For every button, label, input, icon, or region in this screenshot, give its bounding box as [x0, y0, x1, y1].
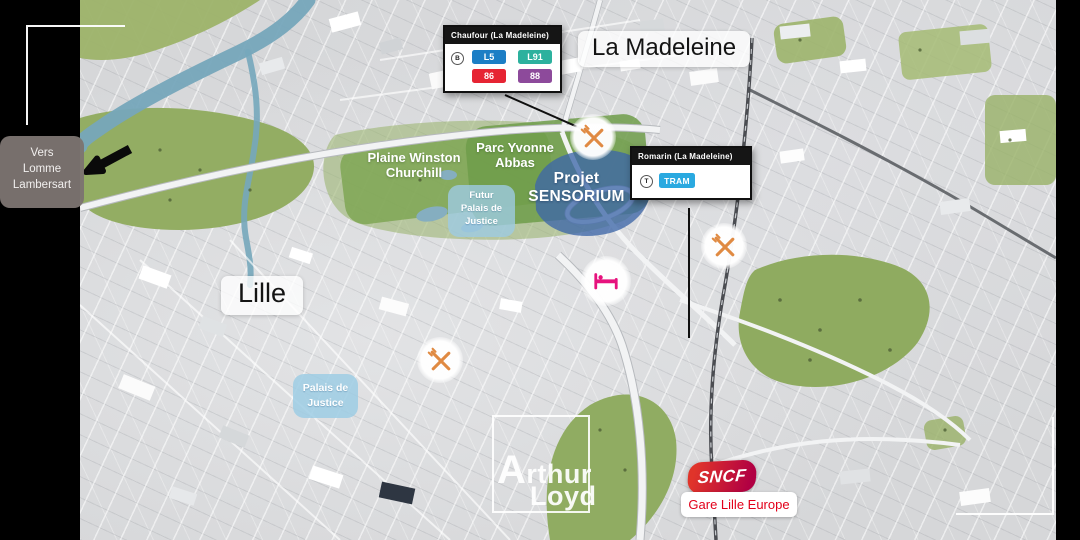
bus-line-badge: 86 — [472, 69, 506, 83]
label-palais-de-justice: Palais de Justice — [293, 374, 358, 418]
label-la-madeleine: La Madeleine — [578, 31, 750, 67]
label-projet-sensorium: Projet SENSORIUM — [513, 170, 640, 207]
direction-sign-lomme-lambersart: Vers Lomme Lambersart — [0, 136, 84, 208]
label-parc-yvonne-abbas: Parc Yvonne Abbas — [453, 140, 577, 171]
bus-circle-icon: B — [451, 52, 464, 65]
callout-chaufour-stop: Chaufour (La Madeleine) B L5 L91 86 88 — [443, 25, 562, 93]
restaurant-marker — [701, 223, 747, 269]
slide: Arthur Loyd La Madeleine Lille Plaine Wi… — [0, 0, 1080, 540]
watermark-line2: Loyd — [530, 486, 597, 508]
hotel-marker — [581, 256, 631, 306]
label-gare-lille-europe: Gare Lille Europe — [681, 492, 797, 517]
bus-line-badge: L91 — [518, 50, 552, 64]
callout-romarin-title: Romarin (La Madeleine) — [632, 148, 750, 165]
bus-line-badge: 88 — [518, 69, 552, 83]
callout-chaufour-title: Chaufour (La Madeleine) — [445, 27, 560, 44]
bus-line-badge: L5 — [472, 50, 506, 64]
restaurant-marker — [417, 337, 463, 383]
callout-romarin-stop: Romarin (La Madeleine) T TRAM — [630, 146, 752, 200]
label-futur-palais-de-justice: Futur Palais de Justice — [448, 185, 515, 237]
arthur-loyd-watermark: Arthur Loyd — [497, 456, 597, 507]
sncf-logo: SNCF — [686, 459, 757, 495]
hotel-bed-icon — [592, 267, 620, 295]
restaurant-marker — [570, 114, 616, 160]
crossed-fork-knife-icon — [711, 233, 738, 260]
watermark-initial: A — [497, 456, 526, 484]
crossed-fork-knife-icon — [427, 347, 454, 374]
crossed-fork-knife-icon — [580, 124, 607, 151]
tram-line-badge: TRAM — [659, 173, 695, 188]
label-lille: Lille — [221, 276, 303, 315]
tram-circle-icon: T — [640, 175, 653, 188]
